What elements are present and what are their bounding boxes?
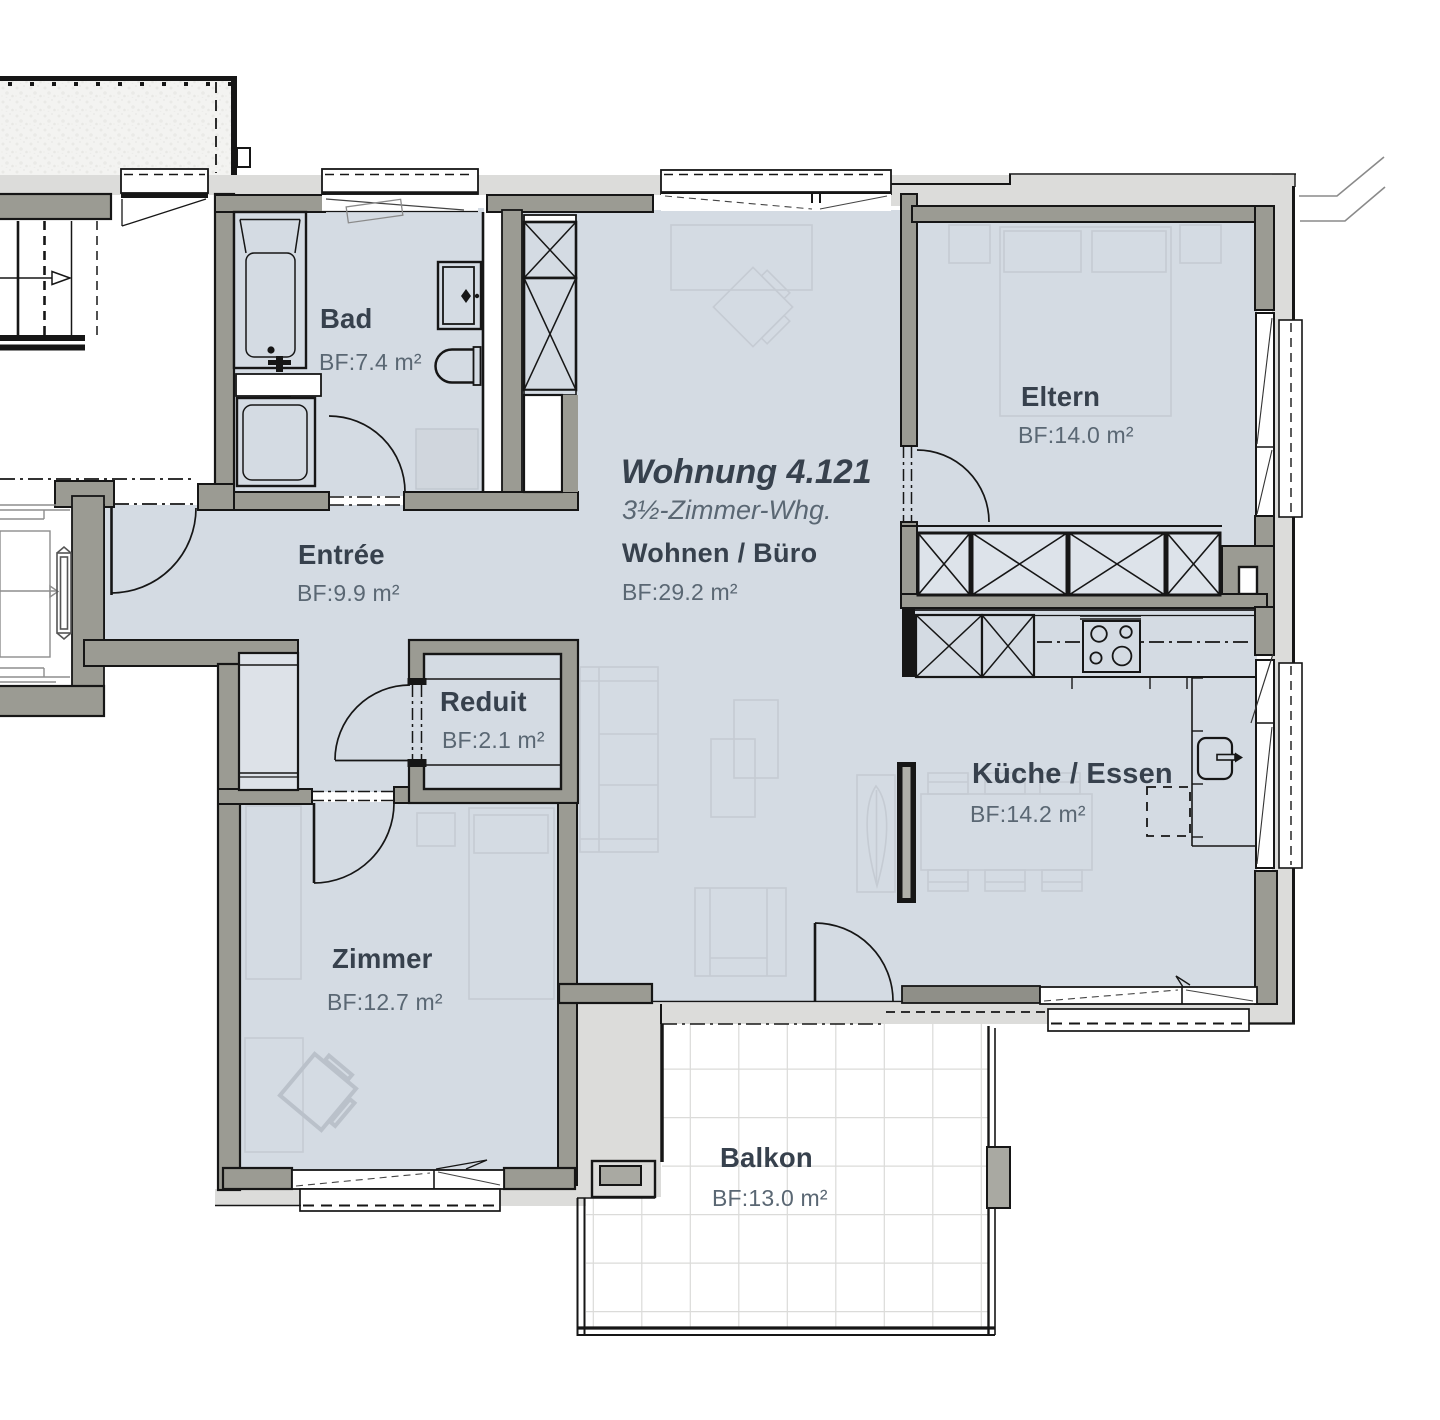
svg-text:BF:12.7 m²: BF:12.7 m² bbox=[327, 989, 443, 1015]
svg-text:BF:9.9 m²: BF:9.9 m² bbox=[297, 580, 400, 606]
svg-text:3½-Zimmer-Whg.: 3½-Zimmer-Whg. bbox=[622, 495, 832, 525]
svg-text:Bad: Bad bbox=[320, 303, 373, 334]
svg-text:Wohnen / Büro: Wohnen / Büro bbox=[622, 538, 817, 568]
svg-text:Eltern: Eltern bbox=[1021, 381, 1100, 412]
svg-text:Entrée: Entrée bbox=[298, 539, 385, 570]
svg-text:Balkon: Balkon bbox=[720, 1142, 813, 1173]
svg-text:BF:2.1 m²: BF:2.1 m² bbox=[442, 727, 545, 753]
svg-text:BF:13.0 m²: BF:13.0 m² bbox=[712, 1185, 828, 1211]
svg-text:BF:7.4 m²: BF:7.4 m² bbox=[319, 349, 422, 375]
svg-text:Wohnung 4.121: Wohnung 4.121 bbox=[621, 453, 872, 491]
svg-text:BF:29.2 m²: BF:29.2 m² bbox=[622, 579, 738, 605]
svg-text:BF:14.2 m²: BF:14.2 m² bbox=[970, 801, 1086, 827]
svg-text:Küche / Essen: Küche / Essen bbox=[972, 758, 1173, 790]
svg-text:Reduit: Reduit bbox=[440, 686, 527, 717]
svg-text:Zimmer: Zimmer bbox=[332, 943, 433, 974]
svg-text:BF:14.0 m²: BF:14.0 m² bbox=[1018, 422, 1134, 448]
